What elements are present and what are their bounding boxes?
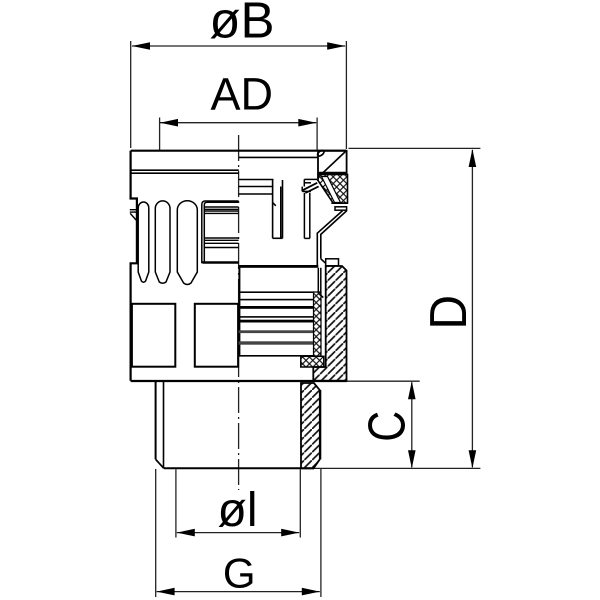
svg-text:AD: AD — [210, 69, 273, 120]
svg-text:øB: øB — [209, 0, 274, 49]
svg-text:øl: øl — [218, 484, 258, 537]
svg-text:C: C — [359, 411, 417, 442]
svg-text:D: D — [419, 295, 477, 330]
svg-text:G: G — [223, 550, 256, 597]
